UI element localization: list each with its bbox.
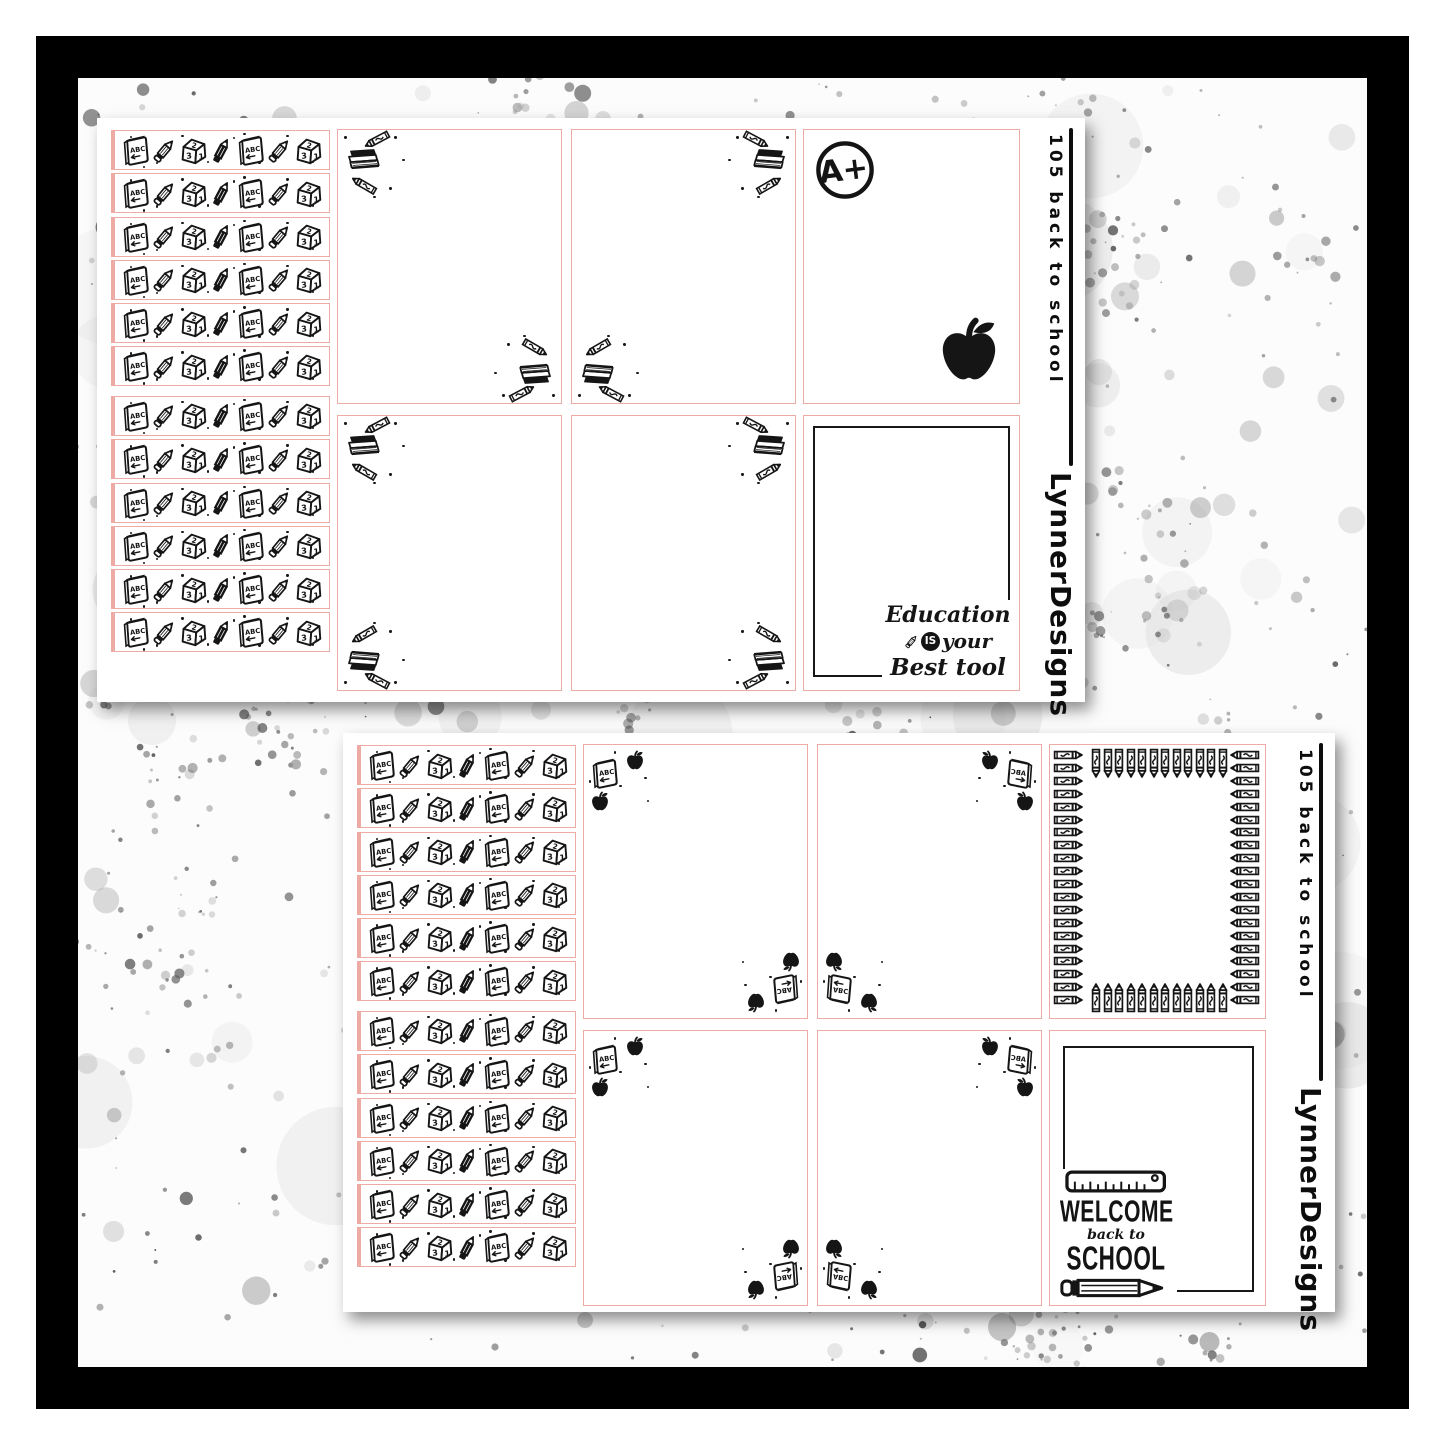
pencil-icon bbox=[512, 838, 539, 865]
apple-icon bbox=[590, 1077, 610, 1099]
abc-book-icon bbox=[236, 134, 265, 166]
pencil-icon bbox=[397, 1191, 424, 1218]
pen-icon bbox=[208, 137, 235, 164]
apple-icon bbox=[590, 791, 610, 813]
crayon-icon bbox=[507, 382, 536, 404]
full-box-sticker bbox=[571, 415, 796, 691]
number-cube-icon bbox=[540, 880, 569, 909]
crayon-icon bbox=[1053, 853, 1083, 863]
ink-dot bbox=[181, 488, 183, 490]
abc-book-icon bbox=[367, 749, 396, 781]
ink-dot bbox=[389, 781, 391, 783]
apple-icon bbox=[746, 991, 766, 1013]
ink-dot bbox=[853, 1263, 855, 1265]
ink-dot bbox=[143, 432, 145, 434]
kit-code-label: 105 back to school bbox=[1295, 749, 1315, 1001]
ink-dot bbox=[636, 372, 638, 374]
ink-dot bbox=[402, 659, 404, 661]
number-cube-icon bbox=[540, 837, 569, 866]
number-cube-icon bbox=[179, 352, 208, 381]
ink-dot bbox=[504, 1216, 506, 1218]
ink-dot bbox=[532, 1232, 534, 1234]
crayon-icon bbox=[1114, 983, 1124, 1013]
ink-dot bbox=[312, 334, 314, 336]
books-icon bbox=[517, 359, 557, 385]
ink-dot bbox=[504, 1086, 506, 1088]
crayon-icon bbox=[1230, 944, 1260, 954]
crayon-icon bbox=[1218, 748, 1228, 778]
apple-icon bbox=[1015, 791, 1035, 813]
number-cube-icon bbox=[425, 1146, 454, 1175]
ink-dot bbox=[786, 681, 788, 683]
apple-icon bbox=[746, 1278, 766, 1300]
abc-book-icon bbox=[367, 1015, 396, 1047]
crayon-icon bbox=[1230, 995, 1260, 1005]
crayon-icon bbox=[1172, 748, 1182, 778]
ink-dot bbox=[286, 351, 288, 353]
ink-dot bbox=[532, 1059, 534, 1061]
abc-book-icon bbox=[1006, 1043, 1035, 1075]
pen-icon bbox=[208, 223, 235, 250]
crayon-icon bbox=[1053, 982, 1083, 992]
crayon-icon bbox=[1230, 982, 1260, 992]
ink-dot bbox=[233, 353, 235, 355]
abc-book-icon bbox=[121, 177, 150, 209]
ink-dot bbox=[427, 1189, 429, 1191]
crayon-icon bbox=[349, 624, 378, 647]
pen-icon bbox=[208, 489, 235, 516]
books-icon bbox=[751, 148, 791, 174]
crayon-icon bbox=[1230, 776, 1260, 786]
side-rule-line bbox=[1319, 743, 1323, 1081]
abc-book-icon bbox=[367, 1102, 396, 1134]
ink-dot bbox=[532, 880, 534, 882]
abc-book-icon bbox=[482, 1058, 511, 1090]
ink-dot bbox=[489, 1101, 491, 1103]
ink-dot bbox=[258, 378, 260, 380]
abc-book-icon bbox=[482, 1102, 511, 1134]
ink-dot bbox=[978, 777, 980, 779]
ink-dot bbox=[976, 1086, 978, 1088]
pencil-icon bbox=[151, 489, 178, 516]
ink-dot bbox=[286, 488, 288, 490]
ink-dot bbox=[143, 605, 145, 607]
ink-dot bbox=[878, 1271, 880, 1273]
ink-dot bbox=[389, 1263, 391, 1265]
abc-book-icon bbox=[1006, 757, 1035, 789]
full-box-sticker bbox=[571, 129, 796, 404]
ink-dot bbox=[243, 529, 245, 531]
ink-dot bbox=[286, 444, 288, 446]
pencil-icon bbox=[397, 1104, 424, 1131]
abc-book-icon bbox=[367, 965, 396, 997]
ink-dot bbox=[757, 482, 759, 484]
ink-dot bbox=[558, 1085, 560, 1087]
ink-dot bbox=[258, 249, 260, 251]
ink-dot bbox=[258, 205, 260, 207]
pencil-icon bbox=[397, 1017, 424, 1044]
crayon-icon bbox=[1053, 789, 1083, 799]
abc-book-icon bbox=[824, 1261, 853, 1293]
welcome-line-1: WELCOME bbox=[1060, 1194, 1172, 1230]
number-cube-icon bbox=[179, 575, 208, 604]
ink-dot bbox=[769, 1263, 771, 1265]
ink-dot bbox=[607, 335, 609, 337]
corner-doodle-cluster bbox=[490, 332, 556, 398]
ink-dot bbox=[181, 308, 183, 310]
pencil-icon bbox=[151, 446, 178, 473]
crayon-icon bbox=[1103, 983, 1113, 1013]
side-rule-line bbox=[1069, 128, 1073, 466]
pencil-icon bbox=[266, 532, 293, 559]
corner-doodle-cluster bbox=[736, 947, 802, 1013]
pen-icon bbox=[208, 353, 235, 380]
pencil-icon bbox=[266, 446, 293, 473]
ink-dot bbox=[489, 1057, 491, 1059]
ink-dot bbox=[489, 791, 491, 793]
ink-dot bbox=[647, 800, 649, 802]
washi-strip bbox=[111, 173, 330, 213]
ink-dot bbox=[156, 558, 158, 560]
number-cube-icon bbox=[540, 924, 569, 953]
number-cube-icon bbox=[179, 531, 208, 560]
crayon-border bbox=[1052, 747, 1263, 1016]
crayon-icon bbox=[1091, 748, 1101, 778]
pencil-icon bbox=[151, 402, 178, 429]
ink-dot bbox=[143, 475, 145, 477]
ink-dot bbox=[489, 921, 491, 923]
apple-icon bbox=[936, 316, 1002, 388]
abc-book-icon bbox=[367, 879, 396, 911]
pencil-icon bbox=[512, 1104, 539, 1131]
ink-dot bbox=[1009, 1037, 1011, 1039]
crayon-icon bbox=[1149, 983, 1159, 1013]
full-box-sticker bbox=[337, 129, 562, 404]
corner-doodle-cluster bbox=[736, 1234, 802, 1300]
apple-icon bbox=[1015, 1077, 1035, 1099]
ink-dot bbox=[479, 968, 481, 970]
washi-strip bbox=[111, 439, 330, 479]
ink-dot bbox=[736, 136, 738, 138]
ink-dot bbox=[394, 681, 396, 683]
quote-word-your: your bbox=[942, 629, 992, 653]
washi-strip bbox=[111, 303, 330, 343]
pencil-icon bbox=[151, 266, 178, 293]
ink-dot bbox=[286, 617, 288, 619]
ink-dot bbox=[389, 824, 391, 826]
abc-book-icon bbox=[367, 836, 396, 868]
number-cube-icon bbox=[294, 265, 323, 294]
ink-dot bbox=[848, 1009, 850, 1011]
ink-dot bbox=[402, 1173, 404, 1175]
ink-dot bbox=[489, 835, 491, 837]
books-icon bbox=[342, 148, 382, 174]
ink-dot bbox=[427, 966, 429, 968]
ink-dot bbox=[143, 648, 145, 650]
books-icon bbox=[576, 359, 616, 385]
pencil-icon bbox=[266, 310, 293, 337]
ink-dot bbox=[742, 1248, 744, 1250]
ink-dot bbox=[389, 1177, 391, 1179]
ink-dot bbox=[736, 422, 738, 424]
pen-icon bbox=[454, 1147, 481, 1174]
ink-dot bbox=[402, 1216, 404, 1218]
ink-dot bbox=[156, 249, 158, 251]
ink-dot bbox=[373, 482, 375, 484]
crayon-icon bbox=[1103, 748, 1113, 778]
crayon-icon bbox=[1206, 748, 1216, 778]
crayon-icon bbox=[1137, 983, 1147, 1013]
ink-dot bbox=[647, 1086, 649, 1088]
pencil-icon bbox=[151, 180, 178, 207]
ink-dot bbox=[143, 519, 145, 521]
ink-dot bbox=[558, 949, 560, 951]
ink-dot bbox=[853, 976, 855, 978]
pencil-icon bbox=[1060, 1277, 1172, 1299]
books-icon bbox=[751, 646, 791, 672]
ink-dot bbox=[373, 622, 375, 624]
pencil-icon bbox=[397, 752, 424, 779]
washi-strip bbox=[357, 875, 576, 915]
crayon-icon bbox=[1230, 956, 1260, 966]
ink-dot bbox=[427, 837, 429, 839]
ink-dot bbox=[233, 490, 235, 492]
abc-book-icon bbox=[236, 443, 265, 475]
ink-dot bbox=[504, 950, 506, 952]
washi-strip bbox=[111, 346, 330, 386]
ink-dot bbox=[532, 1146, 534, 1148]
pencil-icon bbox=[151, 310, 178, 337]
ink-dot bbox=[479, 1105, 481, 1107]
crayon-icon bbox=[1053, 815, 1083, 825]
abc-book-icon bbox=[236, 573, 265, 605]
pencil-icon bbox=[266, 266, 293, 293]
pencil-icon bbox=[397, 968, 424, 995]
ink-dot bbox=[757, 622, 759, 624]
quote-sticker: Education IS your Best tool bbox=[803, 415, 1020, 691]
ink-dot bbox=[156, 378, 158, 380]
ink-dot bbox=[389, 868, 391, 870]
number-cube-icon bbox=[425, 794, 454, 823]
number-cube-icon bbox=[540, 1146, 569, 1175]
abc-book-icon bbox=[367, 1188, 396, 1220]
number-cube-icon bbox=[294, 352, 323, 381]
ink-dot bbox=[427, 923, 429, 925]
crayon-icon bbox=[1137, 748, 1147, 778]
pen-icon bbox=[454, 752, 481, 779]
washi-strip bbox=[357, 918, 576, 958]
ink-dot bbox=[504, 1173, 506, 1175]
grade-apple-sticker: A+ bbox=[803, 129, 1020, 404]
welcome-text-block: WELCOME back to SCHOOL bbox=[1055, 1169, 1177, 1299]
corner-doodle-cluster bbox=[724, 135, 790, 201]
ink-dot bbox=[389, 1134, 391, 1136]
crayon-icon bbox=[1053, 892, 1083, 902]
ink-dot bbox=[286, 531, 288, 533]
abc-book-icon bbox=[482, 965, 511, 997]
abc-book-icon bbox=[121, 400, 150, 432]
ink-dot bbox=[258, 558, 260, 560]
sheet-side-label: 105 back to school LynnerDesigns bbox=[1283, 739, 1331, 1306]
number-cube-icon bbox=[425, 1103, 454, 1132]
number-cube-icon bbox=[425, 880, 454, 909]
ink-dot bbox=[233, 180, 235, 182]
pencil-icon bbox=[151, 137, 178, 164]
ink-dot bbox=[389, 911, 391, 913]
crayon-icon bbox=[754, 174, 783, 197]
ink-dot bbox=[741, 187, 743, 189]
ink-dot bbox=[258, 471, 260, 473]
abc-book-icon bbox=[482, 922, 511, 954]
ink-dot bbox=[1034, 780, 1036, 782]
ink-dot bbox=[578, 394, 580, 396]
pencil-icon bbox=[151, 619, 178, 646]
pencil-icon bbox=[512, 1234, 539, 1261]
ink-dot bbox=[494, 372, 496, 374]
abc-book-icon bbox=[482, 1015, 511, 1047]
number-cube-icon bbox=[179, 618, 208, 647]
quote-line-2: IS your bbox=[882, 629, 1014, 653]
number-cube-icon bbox=[425, 837, 454, 866]
washi-strip bbox=[111, 260, 330, 300]
pencil-icon bbox=[266, 576, 293, 603]
crayon-icon bbox=[1053, 918, 1083, 928]
abc-book-icon bbox=[367, 1145, 396, 1177]
ink-dot bbox=[744, 984, 746, 986]
welcome-sticker: WELCOME back to SCHOOL bbox=[1049, 1030, 1266, 1306]
ink-dot bbox=[156, 428, 158, 430]
ink-dot bbox=[736, 681, 738, 683]
pencil-icon bbox=[151, 223, 178, 250]
corner-doodle-cluster bbox=[343, 421, 409, 487]
corner-doodle-cluster bbox=[724, 421, 790, 487]
ink-dot bbox=[233, 446, 235, 448]
ink-dot bbox=[502, 394, 504, 396]
ink-dot bbox=[233, 619, 235, 621]
ink-dot bbox=[389, 1090, 391, 1092]
pencil-icon bbox=[266, 353, 293, 380]
ink-dot bbox=[427, 880, 429, 882]
ink-dot bbox=[286, 178, 288, 180]
pencil-icon bbox=[397, 1061, 424, 1088]
ink-dot bbox=[402, 820, 404, 822]
pencil-icon bbox=[512, 795, 539, 822]
corner-doodle-cluster bbox=[577, 332, 643, 398]
quote-text-block: Education IS your Best tool bbox=[882, 600, 1014, 681]
sticker-sheet-top: A+ Education IS your Best tool 105 bac bbox=[97, 118, 1085, 702]
abc-book-icon bbox=[482, 792, 511, 824]
pencil-icon bbox=[397, 838, 424, 865]
ink-dot bbox=[233, 224, 235, 226]
ink-dot bbox=[427, 793, 429, 795]
ink-dot bbox=[644, 777, 646, 779]
pen-icon bbox=[454, 881, 481, 908]
ink-dot bbox=[775, 1296, 777, 1298]
pen-icon bbox=[454, 1191, 481, 1218]
ink-dot bbox=[156, 335, 158, 337]
washi-strip-column bbox=[111, 130, 330, 656]
crayon-icon bbox=[1230, 969, 1260, 979]
crayon-icon bbox=[1195, 983, 1205, 1013]
number-cube-icon bbox=[294, 309, 323, 338]
ink-dot bbox=[558, 819, 560, 821]
ink-dot bbox=[619, 1071, 621, 1073]
number-cube-icon bbox=[425, 1016, 454, 1045]
ink-dot bbox=[389, 1047, 391, 1049]
washi-strip bbox=[357, 1011, 576, 1051]
number-cube-icon bbox=[294, 531, 323, 560]
crayon-icon bbox=[1126, 983, 1136, 1013]
ink-dot bbox=[479, 795, 481, 797]
number-cube-icon bbox=[179, 445, 208, 474]
ink-dot bbox=[286, 265, 288, 267]
crayon-icon bbox=[1114, 748, 1124, 778]
washi-strip-column bbox=[357, 745, 576, 1271]
crayon-icon bbox=[1230, 827, 1260, 837]
number-cube-icon bbox=[540, 967, 569, 996]
ink-dot bbox=[243, 220, 245, 222]
sheet-side-label: 105 back to school LynnerDesigns bbox=[1033, 124, 1081, 696]
ink-dot bbox=[507, 343, 509, 345]
ink-dot bbox=[181, 531, 183, 533]
number-cube-icon bbox=[540, 1233, 569, 1262]
number-cube-icon bbox=[179, 488, 208, 517]
ink-dot bbox=[394, 136, 396, 138]
crayon-frame-sticker bbox=[1049, 744, 1266, 1019]
ink-dot bbox=[243, 349, 245, 351]
washi-strip bbox=[111, 483, 330, 523]
apple-icon bbox=[859, 991, 879, 1013]
abc-book-icon bbox=[482, 749, 511, 781]
pencil-icon bbox=[904, 634, 919, 649]
crayon-icon bbox=[1053, 905, 1083, 915]
pen-icon bbox=[454, 1104, 481, 1131]
ink-dot bbox=[402, 1086, 404, 1088]
washi-strip bbox=[357, 1227, 576, 1267]
crayon-icon bbox=[1230, 866, 1260, 876]
ink-dot bbox=[181, 178, 183, 180]
crayon-icon bbox=[1230, 931, 1260, 941]
ink-dot bbox=[402, 950, 404, 952]
washi-strip bbox=[111, 612, 330, 652]
books-icon bbox=[751, 434, 791, 460]
ink-dot bbox=[373, 196, 375, 198]
ink-dot bbox=[286, 574, 288, 576]
number-cube-icon bbox=[179, 179, 208, 208]
books-icon bbox=[342, 434, 382, 460]
pen-icon bbox=[208, 619, 235, 646]
number-cube-icon bbox=[179, 401, 208, 430]
pencil-icon bbox=[266, 489, 293, 516]
ink-dot bbox=[156, 205, 158, 207]
abc-book-icon bbox=[236, 350, 265, 382]
apple-icon bbox=[781, 950, 801, 972]
ink-dot bbox=[402, 864, 404, 866]
ink-dot bbox=[389, 954, 391, 956]
abc-book-icon bbox=[121, 616, 150, 648]
ink-dot bbox=[769, 976, 771, 978]
abc-book-icon bbox=[236, 487, 265, 519]
washi-strip bbox=[357, 1098, 576, 1138]
ink-dot bbox=[614, 751, 616, 753]
ink-dot bbox=[644, 1063, 646, 1065]
pen-icon bbox=[454, 1061, 481, 1088]
washi-strip bbox=[357, 745, 576, 785]
ink-dot bbox=[532, 837, 534, 839]
crayon-icon bbox=[1206, 983, 1216, 1013]
apple-icon bbox=[980, 750, 1000, 772]
abc-book-icon bbox=[367, 792, 396, 824]
